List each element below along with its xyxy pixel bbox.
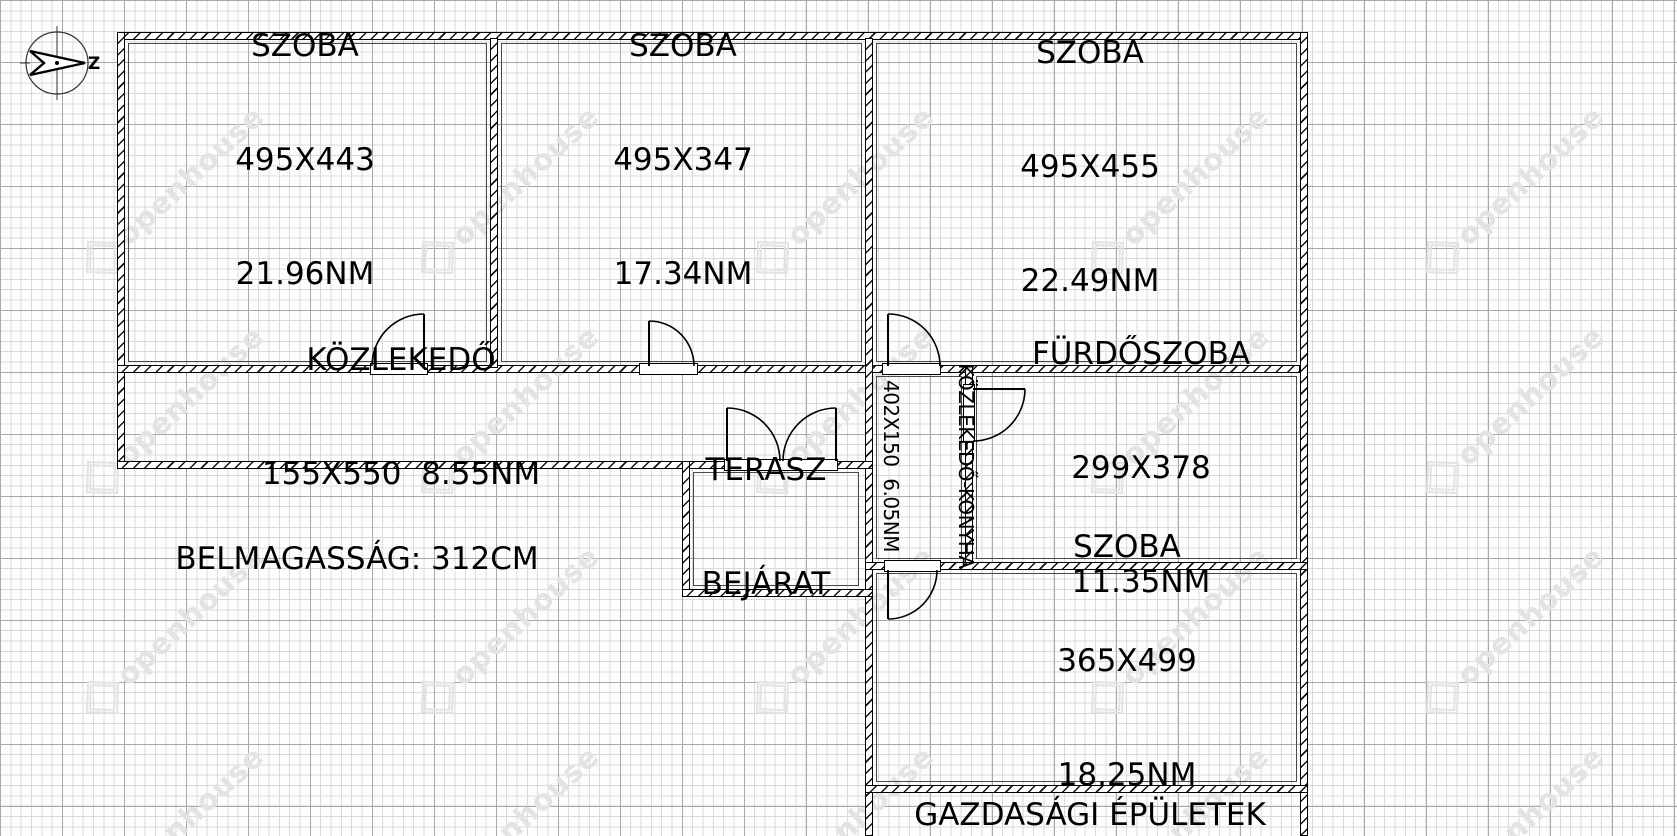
terrace-line2: BEJÁRAT xyxy=(702,565,831,603)
hallway-name: KÖZLEKEDŐ xyxy=(262,341,540,379)
room2-dimensions: 495X347 xyxy=(613,141,753,179)
room2-area: 17.34NM xyxy=(613,255,753,293)
room1-dimensions: 495X443 xyxy=(235,141,375,179)
outbuildings-label: GAZDASÁGI ÉPÜLETEK xyxy=(914,720,1266,836)
corridor-kitchen-label: KÖZLEKEDŐ-KONYHA 402X150 6.05NM xyxy=(828,363,1028,568)
terrace-label: TERASZ BEJÁRAT xyxy=(702,375,831,679)
door-arc-room4 xyxy=(888,570,937,619)
floor-plan: openhouseopenhouseopenhouseopenhouseopen… xyxy=(0,0,1677,836)
corridor-kitchen-dimensions: 402X150 6.05NM xyxy=(878,363,903,568)
room3-name: SZOBA xyxy=(1020,34,1160,72)
corridor-kitchen-name: KÖZLEKEDŐ-KONYHA xyxy=(953,363,978,568)
room1-name: SZOBA xyxy=(235,27,375,65)
terrace-line1: TERASZ xyxy=(702,451,831,489)
outbuildings-name: GAZDASÁGI ÉPÜLETEK xyxy=(914,796,1266,834)
hallway-label: KÖZLEKEDŐ 155X550 8.55NM xyxy=(262,265,540,569)
compass-direction-label: Z xyxy=(88,54,100,74)
room4-name: SZOBA xyxy=(1057,528,1197,566)
hallway-dimensions: 155X550 8.55NM xyxy=(262,455,540,493)
room4-dimensions: 365X499 xyxy=(1057,642,1197,680)
room3-dimensions: 495X455 xyxy=(1020,148,1160,186)
bathroom-name: FÜRDŐSZOBA xyxy=(1032,335,1250,373)
ceiling-height-note: BELMAGASSÁG: 312CM xyxy=(175,540,538,578)
room2-label: SZOBA 495X347 17.34NM xyxy=(613,0,753,369)
room2-name: SZOBA xyxy=(613,27,753,65)
door-arc-room3 xyxy=(888,314,940,366)
